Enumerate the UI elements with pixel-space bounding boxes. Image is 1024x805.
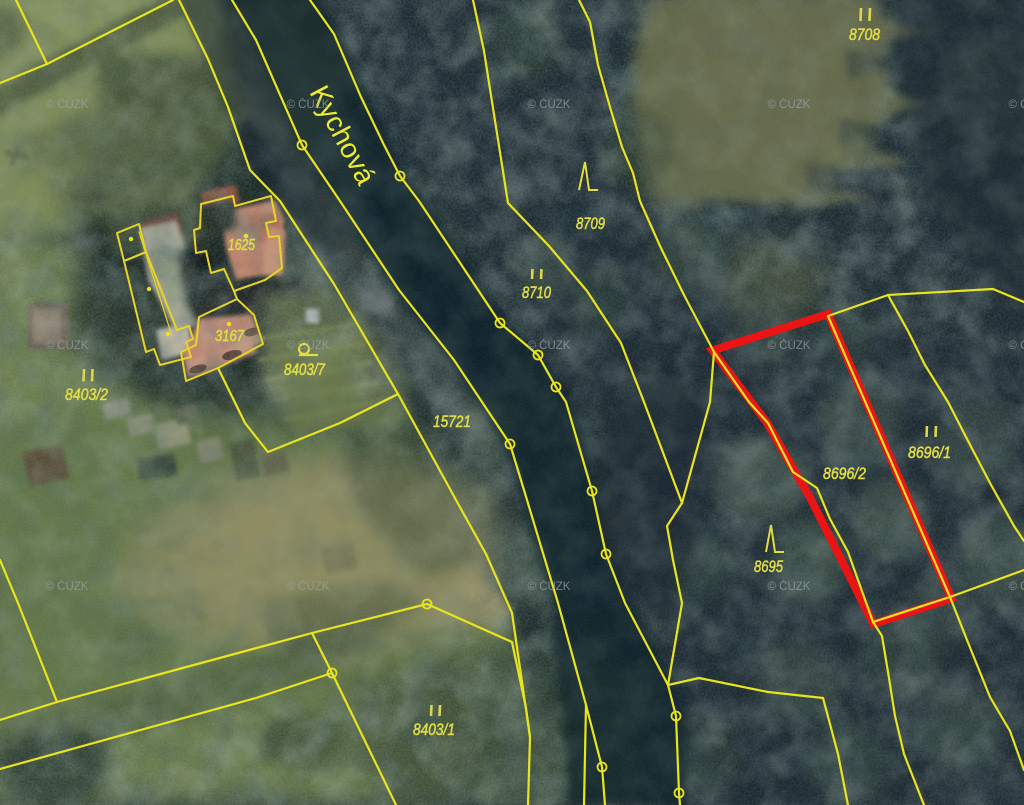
svg-text:© ČÚZK: © ČÚZK [528, 580, 571, 593]
svg-text:© ČÚZK: © ČÚZK [1009, 580, 1024, 593]
svg-text:© ČÚZK: © ČÚZK [1009, 339, 1024, 352]
svg-text:8403/7: 8403/7 [284, 360, 325, 379]
svg-text:© ČÚZK: © ČÚZK [768, 98, 811, 111]
svg-text:8403/2: 8403/2 [65, 385, 108, 404]
svg-text:© ČÚZK: © ČÚZK [287, 580, 330, 593]
svg-text:8403/1: 8403/1 [413, 720, 455, 739]
svg-text:© ČÚZK: © ČÚZK [768, 339, 811, 352]
svg-text:8696/2: 8696/2 [823, 464, 866, 483]
svg-text:© ČÚZK: © ČÚZK [768, 580, 811, 593]
svg-text:© ČÚZK: © ČÚZK [287, 339, 330, 352]
svg-text:8709: 8709 [576, 214, 605, 233]
svg-text:8708: 8708 [849, 25, 880, 44]
svg-text:© ČÚZK: © ČÚZK [287, 98, 330, 111]
svg-text:© ČÚZK: © ČÚZK [46, 339, 89, 352]
svg-text:8696/1: 8696/1 [908, 443, 951, 462]
svg-text:© ČÚZK: © ČÚZK [528, 98, 571, 111]
svg-text:© ČÚZK: © ČÚZK [1009, 98, 1024, 111]
svg-text:8710: 8710 [522, 283, 551, 302]
svg-text:© ČÚZK: © ČÚZK [46, 98, 89, 111]
svg-text:© ČÚZK: © ČÚZK [528, 339, 571, 352]
svg-text:8695: 8695 [754, 557, 783, 576]
svg-text:15721: 15721 [433, 412, 471, 431]
svg-text:1625: 1625 [228, 237, 255, 254]
svg-text:© ČÚZK: © ČÚZK [46, 580, 89, 593]
svg-text:3167: 3167 [215, 328, 245, 345]
